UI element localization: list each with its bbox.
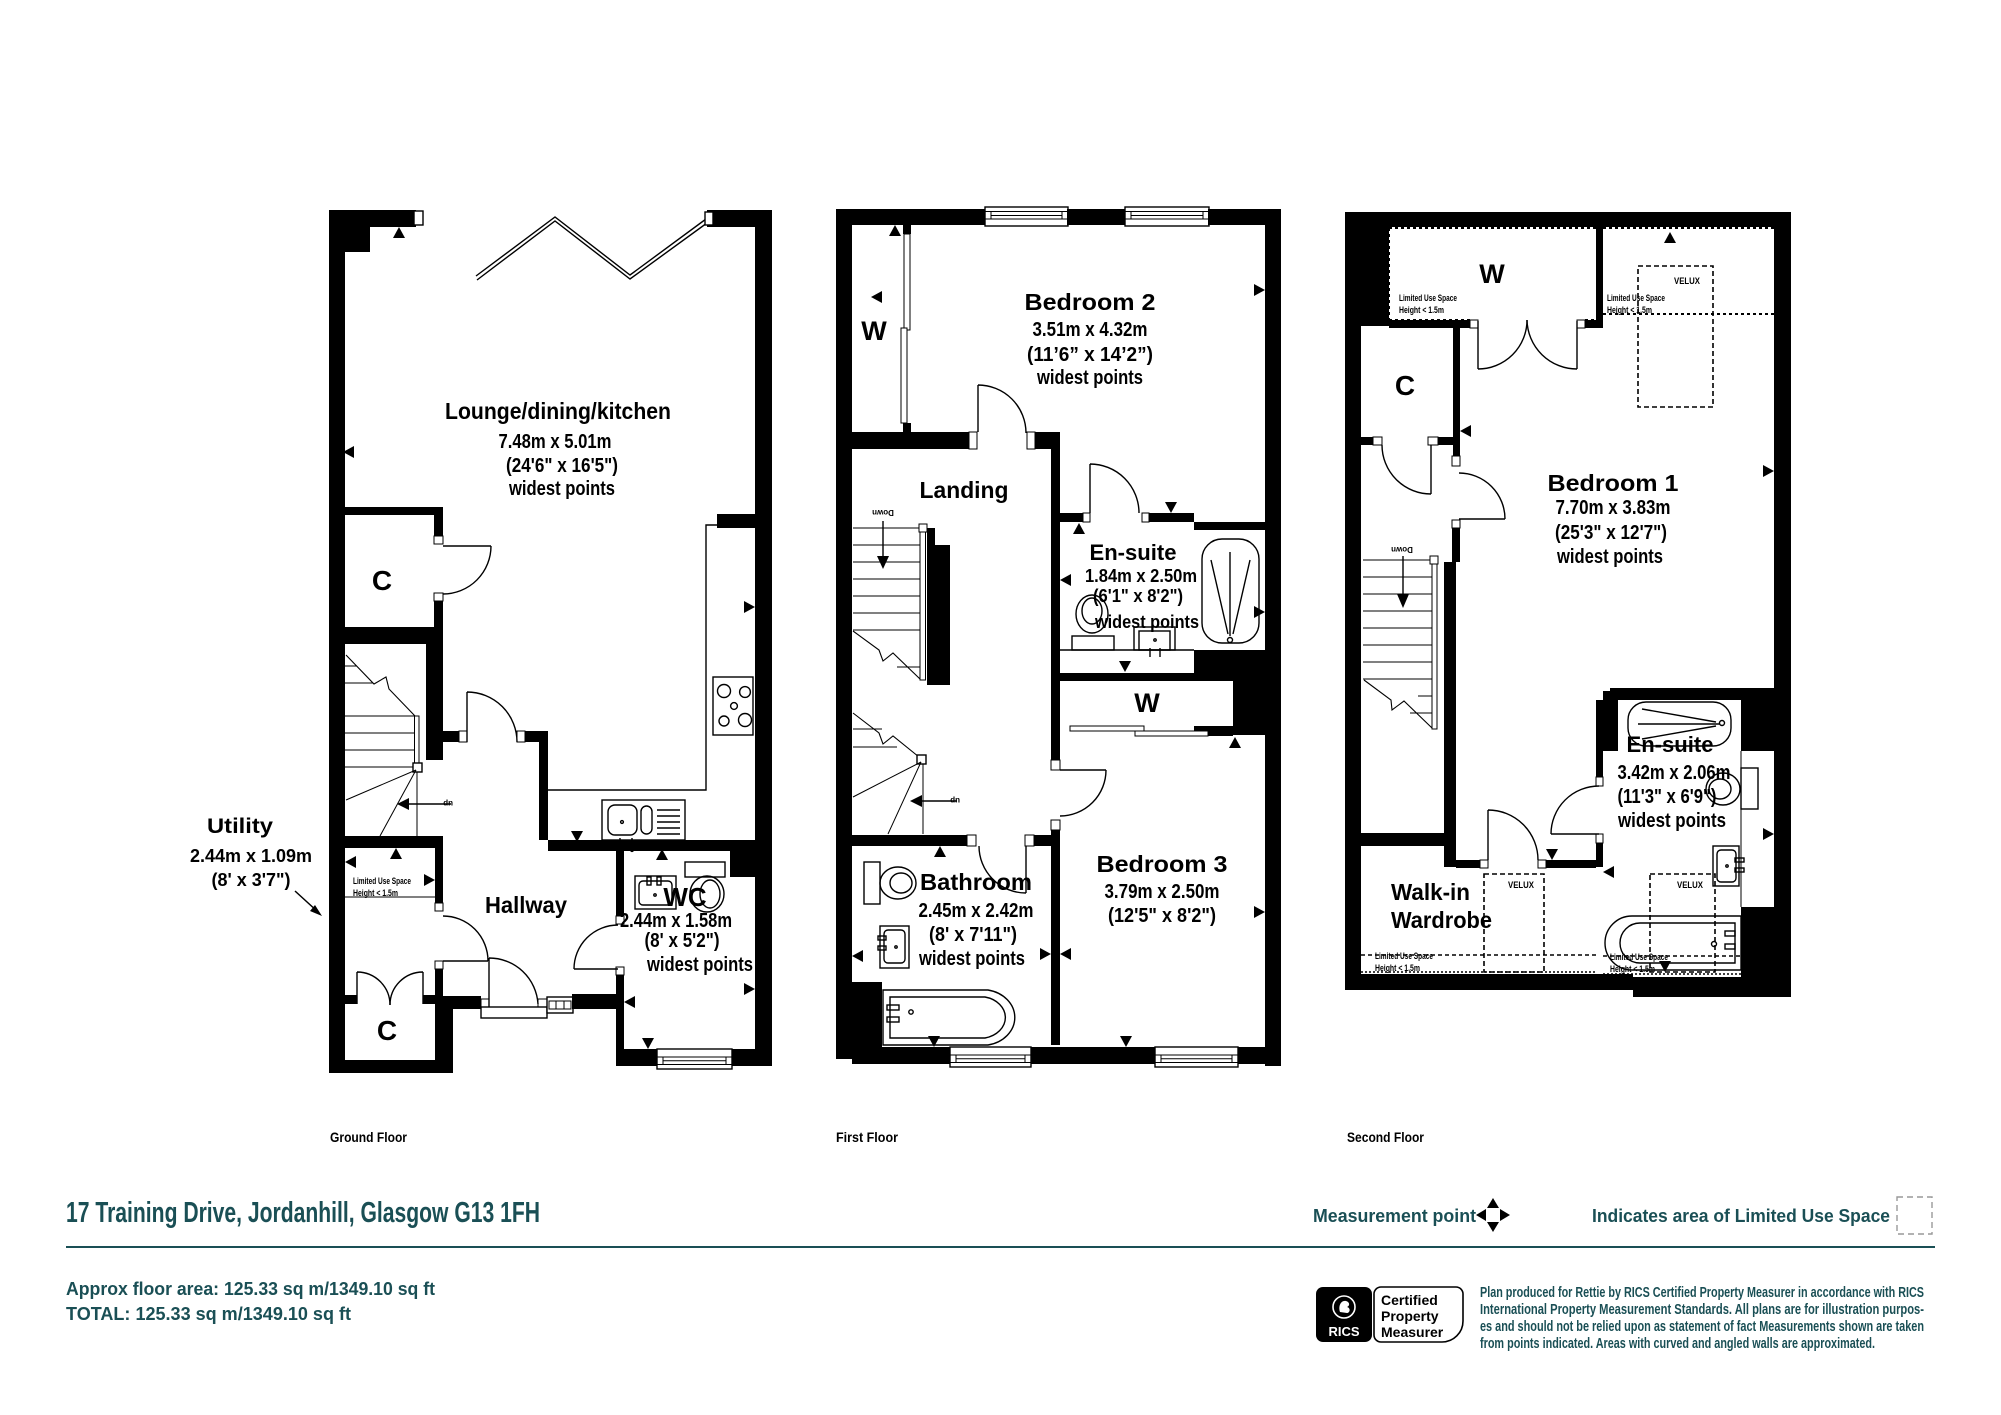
svg-text:Approx floor area: 125.33 sq m: Approx floor area: 125.33 sq m/1349.10 s… [66,1279,435,1299]
svg-text:Limited Use Space: Limited Use Space [1610,952,1668,962]
svg-text:VELUX: VELUX [1677,880,1703,890]
svg-text:Height < 1.5m: Height < 1.5m [1399,305,1444,315]
svg-text:Second Floor: Second Floor [1347,1129,1424,1145]
svg-text:widest points: widest points [1036,367,1143,389]
svg-text:2.44m x 1.58m: 2.44m x 1.58m [620,910,732,932]
svg-text:Hallway: Hallway [485,892,567,918]
svg-text:Limited Use Space: Limited Use Space [1375,951,1433,961]
svg-text:Height < 1.5m: Height < 1.5m [1610,964,1655,974]
svg-text:W: W [1479,259,1505,289]
svg-text:2.44m x 1.09m: 2.44m x 1.09m [190,846,312,866]
svg-text:Bathroom: Bathroom [920,869,1032,895]
svg-text:widest points: widest points [918,948,1025,970]
svg-text:Wardrobe: Wardrobe [1391,907,1492,933]
svg-text:widest points: widest points [508,478,615,500]
svg-text:Utility: Utility [207,815,273,838]
svg-text:C: C [1395,370,1415,401]
svg-text:Bedroom 1: Bedroom 1 [1548,470,1679,496]
svg-text:Down: Down [872,508,894,517]
svg-text:Indicates area of Limited Use: Indicates area of Limited Use Space [1592,1206,1890,1226]
svg-text:7.70m x 3.83m: 7.70m x 3.83m [1556,497,1671,519]
svg-text:from points indicated. Areas w: from points indicated. Areas with curved… [1480,1336,1875,1352]
svg-text:es and should not be relied up: es and should not be relied upon as stat… [1480,1319,1924,1335]
svg-text:widest points: widest points [1617,810,1726,832]
svg-text:Walk-in: Walk-in [1391,879,1470,905]
svg-text:Certified: Certified [1381,1292,1438,1308]
svg-text:C: C [377,1015,397,1046]
svg-text:Plan produced for Rettie by RI: Plan produced for Rettie by RICS Certifi… [1480,1285,1924,1301]
svg-text:widest points: widest points [1094,612,1199,632]
svg-text:(8' x 3'7"): (8' x 3'7") [212,870,291,890]
svg-text:Landing: Landing [920,477,1009,503]
svg-text:1.84m x 2.50m: 1.84m x 2.50m [1085,566,1197,586]
svg-text:Limited Use Space: Limited Use Space [1607,293,1665,303]
svg-text:widest points: widest points [1556,546,1663,568]
svg-text:C: C [372,565,392,596]
svg-text:(6'1" x 8'2"): (6'1" x 8'2") [1093,586,1183,606]
svg-text:TOTAL: 125.33 sq m/1349.10 sq: TOTAL: 125.33 sq m/1349.10 sq ft [66,1304,351,1324]
svg-text:Measurement point: Measurement point [1313,1206,1476,1226]
svg-text:(11'3" x 6'9"): (11'3" x 6'9") [1618,786,1717,808]
svg-text:Down: Down [1391,545,1413,554]
svg-text:International Property Measur: International Property Measurement Stand… [1480,1302,1924,1318]
svg-text:Lounge/dining/kitchen: Lounge/dining/kitchen [445,398,671,424]
svg-text:2.45m x 2.42m: 2.45m x 2.42m [919,900,1034,922]
svg-text:En-suite: En-suite [1627,732,1714,757]
svg-text:En-suite: En-suite [1090,540,1177,565]
svg-text:(8' x 5'2"): (8' x 5'2") [645,930,720,952]
svg-text:17 Training Drive, Jordanhill,: 17 Training Drive, Jordanhill, Glasgow G… [66,1197,540,1229]
svg-text:(25'3" x 12'7"): (25'3" x 12'7") [1555,522,1667,544]
svg-text:3.51m x 4.32m: 3.51m x 4.32m [1033,319,1148,341]
svg-text:(12'5" x 8'2"): (12'5" x 8'2") [1108,905,1216,927]
svg-text:Bedroom 3: Bedroom 3 [1097,851,1228,877]
svg-text:Height < 1.5m: Height < 1.5m [1607,305,1652,315]
svg-text:Limited Use Space: Limited Use Space [353,876,411,886]
svg-text:(8' x 7'11"): (8' x 7'11") [929,924,1017,946]
svg-text:W: W [1134,688,1160,718]
svg-text:W: W [861,316,887,346]
svg-text:(11’6” x 14’2”): (11’6” x 14’2”) [1027,344,1153,366]
svg-text:First Floor: First Floor [836,1129,898,1145]
svg-text:Bedroom 2: Bedroom 2 [1025,289,1156,315]
svg-text:Ground Floor: Ground Floor [330,1129,407,1145]
svg-text:Limited Use Space: Limited Use Space [1399,293,1457,303]
svg-text:7.48m x 5.01m: 7.48m x 5.01m [499,431,612,453]
svg-text:3.42m x 2.06m: 3.42m x 2.06m [1618,762,1731,784]
svg-text:up: up [950,796,960,805]
svg-text:Height < 1.5m: Height < 1.5m [353,888,398,898]
svg-text:up: up [443,799,453,808]
svg-text:VELUX: VELUX [1508,880,1534,890]
svg-text:widest points: widest points [646,954,753,976]
svg-text:Property: Property [1381,1308,1439,1324]
svg-text:Measurer: Measurer [1381,1324,1444,1340]
svg-text:RICS: RICS [1328,1324,1359,1339]
svg-text:3.79m x 2.50m: 3.79m x 2.50m [1105,881,1220,903]
svg-text:(24'6" x 16'5"): (24'6" x 16'5") [506,455,618,477]
svg-text:VELUX: VELUX [1674,276,1700,286]
svg-text:WC: WC [663,882,707,912]
